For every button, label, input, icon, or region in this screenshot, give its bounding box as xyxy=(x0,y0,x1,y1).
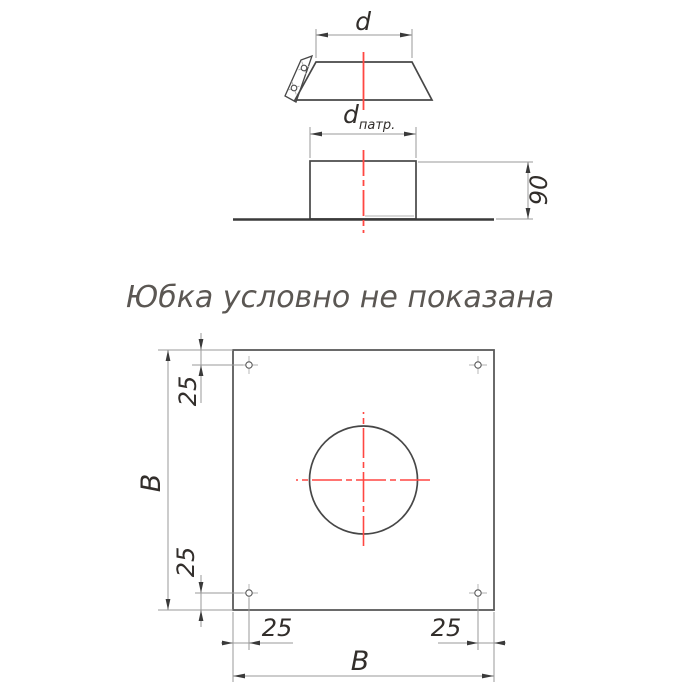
rivet-hole xyxy=(301,65,307,71)
arrowhead xyxy=(199,610,204,621)
arrowhead xyxy=(199,339,204,350)
dim-label-b-left: B xyxy=(136,474,167,493)
arrowhead xyxy=(467,641,478,646)
dim-label-25: 25 xyxy=(431,614,462,642)
drawing-note: Юбка условно не показана xyxy=(126,280,554,315)
fastener-hole xyxy=(246,362,252,368)
dim-label-90: 90 xyxy=(525,175,553,206)
arrowhead xyxy=(400,33,412,38)
dim-label-d: d xyxy=(355,7,371,36)
arrowhead xyxy=(494,641,505,646)
dim-label-25: 25 xyxy=(262,614,293,642)
arrowhead xyxy=(199,582,204,593)
arrowhead xyxy=(166,350,171,361)
arrowhead xyxy=(316,33,328,38)
arrowhead xyxy=(166,599,171,610)
fastener-hole xyxy=(475,590,481,596)
fastener-hole xyxy=(475,362,481,368)
fastener-hole xyxy=(246,590,252,596)
dim-label-25: 25 xyxy=(172,547,200,578)
arrowhead xyxy=(199,365,204,376)
plate-plan-view: B 25 25 25 25 B xyxy=(136,333,506,682)
arrowhead xyxy=(404,132,416,137)
arrowhead xyxy=(249,641,260,646)
arrowhead xyxy=(310,132,322,137)
technical-drawing-page: d dпатр. 90 Ю xyxy=(0,0,700,700)
corner-hole-top-right xyxy=(469,356,487,374)
arrowhead xyxy=(482,674,494,679)
arrowhead xyxy=(526,208,531,219)
dim-label-25: 25 xyxy=(174,376,202,407)
arrowhead xyxy=(526,162,531,173)
drawing-canvas: d dпатр. 90 Ю xyxy=(0,0,700,700)
arrowhead xyxy=(233,674,245,679)
rivet-hole xyxy=(291,85,297,91)
arrowhead xyxy=(222,641,233,646)
dim-label-d-patr: dпатр. xyxy=(343,100,395,133)
stub-side-view: dпатр. 90 xyxy=(233,100,553,233)
skirt-side-view: d xyxy=(285,7,432,110)
seam-flange xyxy=(285,56,312,102)
dim-label-b-bottom: B xyxy=(351,646,370,677)
